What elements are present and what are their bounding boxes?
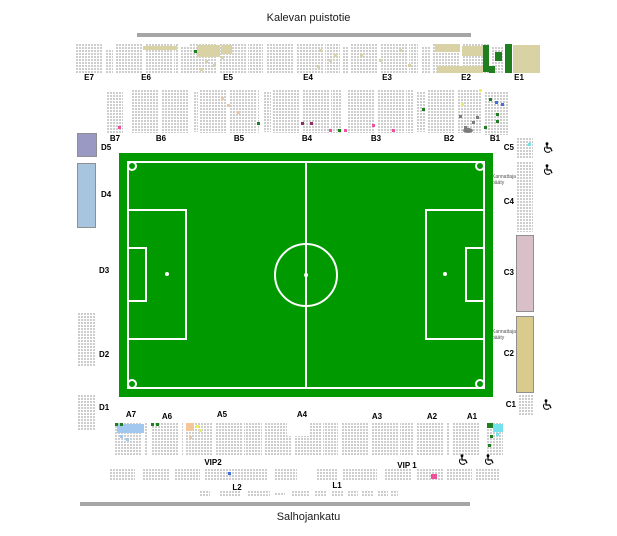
vip-seat-block[interactable]: [447, 469, 472, 480]
pink-seat: [372, 124, 375, 127]
street-name-top: Kalevan puistotie: [0, 12, 617, 24]
sold-seat-cluster: [435, 44, 460, 52]
stadium-seat-map: Kalevan puistotie Salhojankatu E7 E6 E5 …: [0, 0, 617, 536]
stair-strip[interactable]: [417, 92, 426, 132]
section-e3[interactable]: [351, 44, 418, 73]
green-seat: [484, 126, 487, 129]
sold-seat-cluster: [437, 66, 483, 73]
green-seat: [257, 122, 260, 125]
l-seat-block[interactable]: [362, 491, 374, 497]
section-e1[interactable]: [513, 45, 540, 73]
section-e7[interactable]: [76, 44, 103, 73]
green-seat: [422, 108, 425, 111]
wheelchair-icon: [541, 397, 553, 408]
section-a4-notch: [287, 423, 310, 436]
green-seat: [496, 120, 499, 123]
yellow-seat: [196, 425, 199, 428]
goal-area-left: [127, 247, 147, 302]
yellow-seat: [461, 103, 464, 106]
section-e7-label: E7: [84, 74, 94, 82]
stair-strip[interactable]: [106, 50, 113, 73]
section-b6[interactable]: [132, 90, 190, 133]
sold-seat: [379, 59, 382, 62]
gray-seat-cluster: [463, 128, 473, 133]
section-a3[interactable]: [342, 423, 413, 456]
section-a6[interactable]: [152, 423, 183, 456]
blue-seat: [228, 472, 231, 475]
wheelchair-icon: [542, 140, 554, 151]
section-b4[interactable]: [273, 90, 342, 133]
gray-seat: [476, 116, 479, 119]
vip-seat-block[interactable]: [205, 469, 268, 480]
cyan-seat: [528, 143, 531, 146]
section-e5-label: E5: [223, 74, 233, 82]
penalty-spot-left: [165, 272, 169, 276]
green-seat: [490, 435, 493, 438]
vip-seat-block[interactable]: [476, 469, 500, 480]
peach-seat: [237, 111, 240, 114]
corner-arc: [475, 379, 485, 389]
l-seat-block[interactable]: [248, 491, 270, 497]
section-c5-label: C5: [504, 144, 514, 152]
l-seat-block[interactable]: [220, 491, 240, 497]
section-b6-label: B6: [156, 135, 166, 143]
sold-seat-cluster: [143, 46, 177, 50]
section-c3[interactable]: [516, 235, 534, 312]
section-c1[interactable]: [519, 395, 534, 416]
l-seat-block[interactable]: [275, 493, 285, 496]
light-blue-seat: [120, 435, 123, 438]
section-c1-label: C1: [506, 401, 516, 409]
section-e2-label: E2: [461, 74, 471, 82]
section-d4-label: D4: [101, 191, 111, 199]
section-b2[interactable]: [428, 90, 481, 133]
green-seat-cluster: [495, 52, 502, 61]
green-seat: [338, 129, 341, 132]
section-e6-label: E6: [141, 74, 151, 82]
peach-seat: [227, 104, 230, 107]
section-a7-label: A7: [126, 411, 136, 419]
section-b7-label: B7: [110, 135, 120, 143]
green-seat: [115, 423, 118, 426]
section-b3-label: B3: [371, 135, 381, 143]
vip-seat-block[interactable]: [143, 469, 170, 480]
stair-strip[interactable]: [264, 92, 271, 132]
penalty-spot-right: [443, 272, 447, 276]
section-a6-label: A6: [162, 413, 172, 421]
sold-seat: [213, 64, 216, 67]
green-seat: [194, 50, 197, 53]
street-bar-top: [137, 33, 471, 37]
vip-seat-block[interactable]: [343, 469, 377, 480]
sold-seat: [319, 49, 322, 52]
l-seat-block[interactable]: [378, 491, 388, 497]
wheelchair-icon: [457, 452, 469, 463]
cyan-seat-cluster: [493, 424, 503, 432]
light-blue-seat: [126, 438, 129, 441]
gray-seat: [472, 121, 475, 124]
goal-area-right: [465, 247, 485, 302]
peach-seat: [189, 436, 192, 439]
yellow-seat: [479, 89, 482, 92]
section-c4-label: C4: [504, 198, 514, 206]
section-d1[interactable]: [78, 395, 95, 431]
sold-seat: [360, 54, 363, 57]
sold-seat-cluster: [462, 46, 484, 56]
section-a3-label: A3: [372, 413, 382, 421]
vip-seat-block[interactable]: [317, 469, 337, 480]
section-d2-label: D2: [99, 351, 109, 359]
sold-seat-cluster: [197, 45, 220, 57]
green-seat: [489, 98, 492, 101]
corner-arc: [475, 161, 485, 171]
section-c4[interactable]: [517, 162, 533, 232]
center-spot: [304, 273, 308, 277]
stair-strip[interactable]: [343, 47, 349, 73]
purple-seat: [310, 122, 313, 125]
football-pitch: [119, 153, 493, 397]
section-b1-label: B1: [490, 135, 500, 143]
street-bar-bottom: [80, 502, 470, 506]
vip-seat-block[interactable]: [385, 469, 412, 480]
sold-seat-cluster: [221, 45, 232, 54]
section-d2[interactable]: [78, 313, 95, 367]
blue-seat: [495, 101, 498, 104]
sold-seat: [205, 60, 208, 63]
wheelchair-icon: [483, 452, 495, 463]
l-seat-block[interactable]: [292, 491, 310, 497]
vip-seat-block[interactable]: [110, 469, 135, 480]
peach-seat: [221, 97, 224, 100]
supporter-end-note: Kannattaja pääty: [492, 175, 518, 187]
sold-seat: [221, 56, 224, 59]
stair-strip[interactable]: [194, 92, 198, 132]
stair-strip[interactable]: [422, 47, 430, 73]
cyan-seat: [496, 433, 499, 436]
section-c2-label: C2: [504, 350, 514, 358]
section-d3-label: D3: [99, 267, 109, 275]
section-a1-label: A1: [467, 413, 477, 421]
section-a2[interactable]: [417, 423, 450, 456]
section-d5[interactable]: [77, 133, 97, 157]
section-a2-label: A2: [427, 413, 437, 421]
sold-seat: [317, 65, 320, 68]
purple-seat: [301, 122, 304, 125]
l-seat-block[interactable]: [200, 491, 210, 497]
pink-seat: [118, 126, 121, 129]
green-seat: [156, 423, 159, 426]
section-l1-label: L1: [332, 482, 341, 490]
stair-strip[interactable]: [181, 47, 190, 73]
corner-arc: [127, 161, 137, 171]
green-seat: [488, 444, 491, 447]
sold-seat: [399, 49, 402, 52]
sold-seat: [200, 68, 203, 71]
supporter-end-note: Kannattaja pääty: [492, 330, 518, 342]
section-vip2-label: VIP2: [204, 459, 221, 467]
section-c3-label: C3: [504, 269, 514, 277]
green-seat-cluster: [489, 66, 495, 73]
section-d1-label: D1: [99, 404, 109, 412]
section-e3-label: E3: [382, 74, 392, 82]
pink-seat: [431, 474, 437, 479]
section-b3[interactable]: [348, 90, 413, 133]
section-b5-label: B5: [234, 135, 244, 143]
l-seat-block[interactable]: [348, 491, 358, 497]
green-seat: [151, 423, 154, 426]
sold-seat: [334, 54, 337, 57]
green-seat-cluster: [505, 44, 512, 73]
section-b4-label: B4: [302, 135, 312, 143]
section-b5[interactable]: [200, 90, 260, 133]
gray-seat: [459, 115, 462, 118]
l-seat-block[interactable]: [332, 491, 344, 497]
l-seat-block[interactable]: [391, 491, 398, 497]
section-a5-label: A5: [217, 411, 227, 419]
vip-seat-block[interactable]: [175, 469, 200, 480]
blue-seat: [501, 103, 504, 106]
pink-seat: [329, 129, 332, 132]
pink-seat: [344, 129, 347, 132]
l-seat-block[interactable]: [315, 491, 327, 497]
section-b2-label: B2: [444, 135, 454, 143]
peach-seat-cluster: [186, 423, 194, 431]
sold-seat: [329, 59, 332, 62]
sold-seat: [408, 64, 411, 67]
section-d4[interactable]: [77, 163, 96, 228]
section-c5[interactable]: [517, 138, 533, 158]
section-e1-label: E1: [514, 74, 524, 82]
section-c2[interactable]: [516, 316, 534, 393]
vip-seat-block[interactable]: [417, 469, 443, 480]
yellow-seat: [199, 429, 202, 432]
wheelchair-icon: [542, 162, 554, 173]
vip-seat-block[interactable]: [275, 469, 297, 480]
street-name-bottom: Salhojankatu: [0, 511, 617, 523]
corner-arc: [127, 379, 137, 389]
pink-seat: [392, 129, 395, 132]
section-d5-label: D5: [101, 144, 111, 152]
green-seat: [496, 113, 499, 116]
section-e4-label: E4: [303, 74, 313, 82]
green-seat: [120, 423, 123, 426]
section-a4-label: A4: [297, 411, 307, 419]
